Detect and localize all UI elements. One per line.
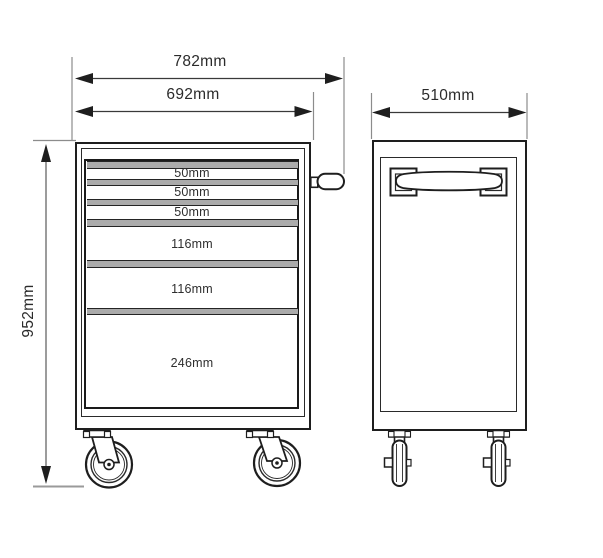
- dimension-692: [75, 92, 314, 140]
- caster-side-right: [484, 431, 511, 487]
- dimension-510: [372, 93, 528, 139]
- line-art-layer: [0, 0, 603, 558]
- side-handle-rod: [311, 174, 344, 189]
- caster-front-right: [247, 431, 301, 487]
- push-handle: [391, 169, 507, 196]
- dimension-952: [33, 141, 84, 487]
- dimension-782: [72, 57, 344, 174]
- caster-side-left: [385, 431, 412, 487]
- tool-cabinet-dimension-drawing: 50mm 50mm 50mm 116mm 116mm 246mm 782mm 6…: [0, 0, 603, 558]
- caster-front-left: [84, 431, 133, 488]
